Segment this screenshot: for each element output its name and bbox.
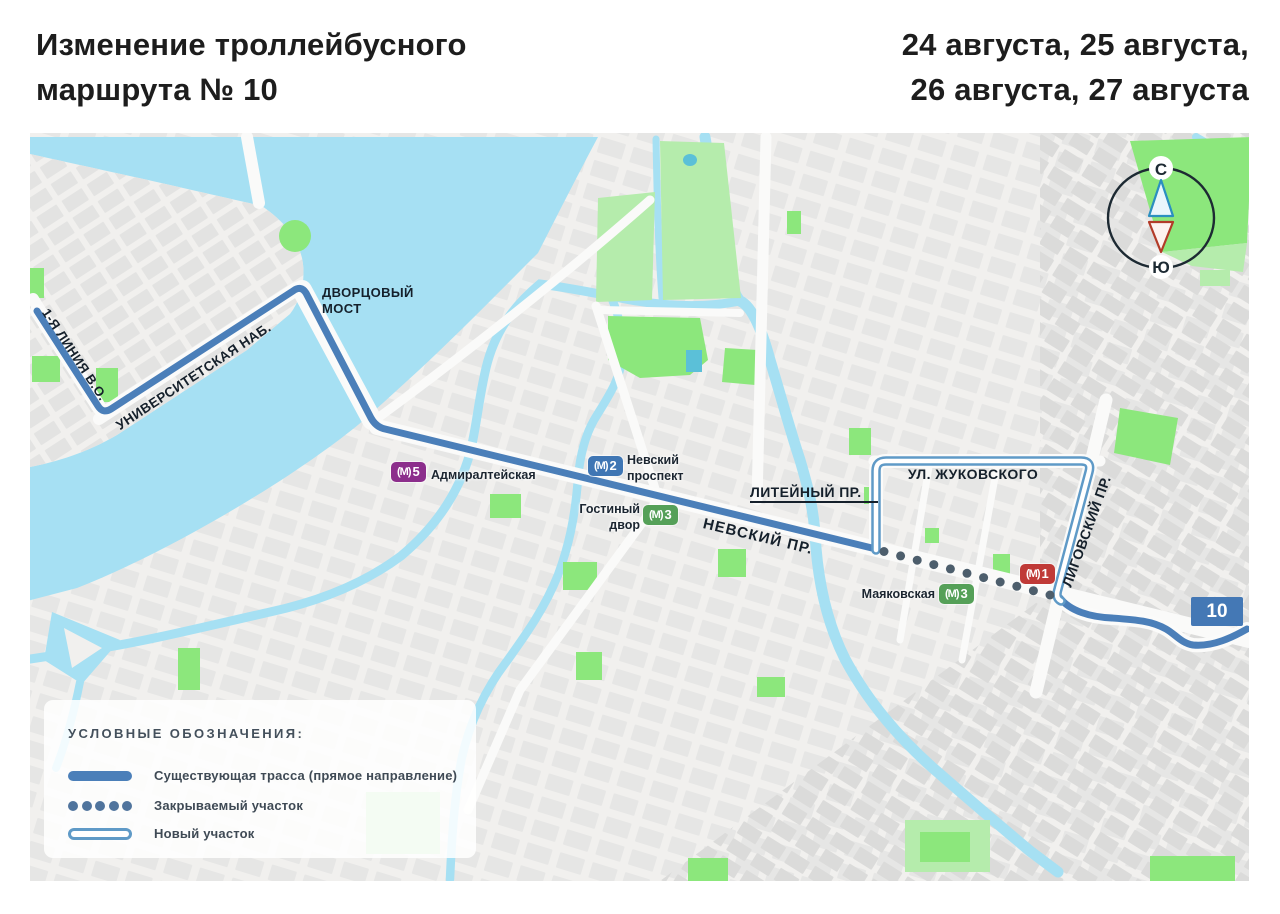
metro-line-number: 1 [1042, 564, 1049, 584]
metro-label-mayakovskaya: Маяковская [845, 587, 935, 603]
liteiny-underline [750, 501, 878, 503]
metro-label-line1: Гостиный [556, 502, 640, 518]
street-label-liteiny: ЛИТЕЙНЫЙ ПР. [750, 483, 862, 500]
street-label-zhukovskogo: УЛ. ЖУКОВСКОГО [908, 466, 1038, 482]
metro-line-number: 3 [665, 505, 672, 525]
metro-badge-mayakovskaya: (М)3 [939, 584, 974, 604]
metro-logo-icon: (М) [397, 462, 411, 482]
poster: Изменение троллейбусного маршрута № 10 2… [0, 0, 1280, 914]
legend-item-label: Закрываемый участок [154, 798, 303, 813]
legend-item-closed: Закрываемый участок [68, 798, 303, 813]
metro-logo-icon: (М) [945, 584, 959, 604]
metro-line-number: 5 [413, 462, 420, 482]
metro-label-line1: Невский [627, 453, 684, 469]
legend-item-label: Новый участок [154, 826, 255, 841]
outlined-line-icon [68, 828, 132, 840]
legend-item-label: Существующая трасса (прямое направление) [154, 768, 457, 783]
solid-line-icon [68, 771, 132, 781]
legend-title: УСЛОВНЫЕ ОБОЗНАЧЕНИЯ: [68, 726, 304, 741]
metro-label-nevsky-prospekt: Невский проспект [627, 453, 684, 484]
metro-logo-icon: (М) [1026, 564, 1040, 584]
metro-line-number: 3 [961, 584, 968, 604]
bridge-label-line1: ДВОРЦОВЫЙ [322, 285, 414, 300]
metro-badge-admiralteyskaya: (М)5 [391, 462, 426, 482]
metro-logo-icon: (М) [649, 505, 663, 525]
metro-label-line2: проспект [627, 469, 684, 485]
legend: УСЛОВНЫЕ ОБОЗНАЧЕНИЯ: Существующая трасс… [44, 700, 476, 858]
metro-badge-nevsky-prospekt: (М)2 [588, 456, 623, 476]
route-number-badge: 10 [1191, 597, 1243, 626]
metro-line-number: 2 [610, 456, 617, 476]
legend-item-new: Новый участок [68, 826, 255, 841]
metro-label-gostiny-dvor: Гостиный двор [556, 502, 640, 533]
dotted-line-icon [68, 801, 132, 811]
compass-north-label: С [1155, 160, 1167, 179]
metro-badge-gostiny-dvor: (М)3 [643, 505, 678, 525]
metro-label-line2: двор [556, 518, 640, 534]
compass-south-label: Ю [1152, 258, 1170, 277]
bridge-label-line2: МОСТ [322, 301, 362, 316]
metro-logo-icon: (М) [594, 456, 608, 476]
legend-item-existing: Существующая трасса (прямое направление) [68, 768, 457, 783]
metro-badge-line1: (М)1 [1020, 564, 1055, 584]
metro-label-admiralteyskaya: Адмиралтейская [431, 468, 536, 484]
